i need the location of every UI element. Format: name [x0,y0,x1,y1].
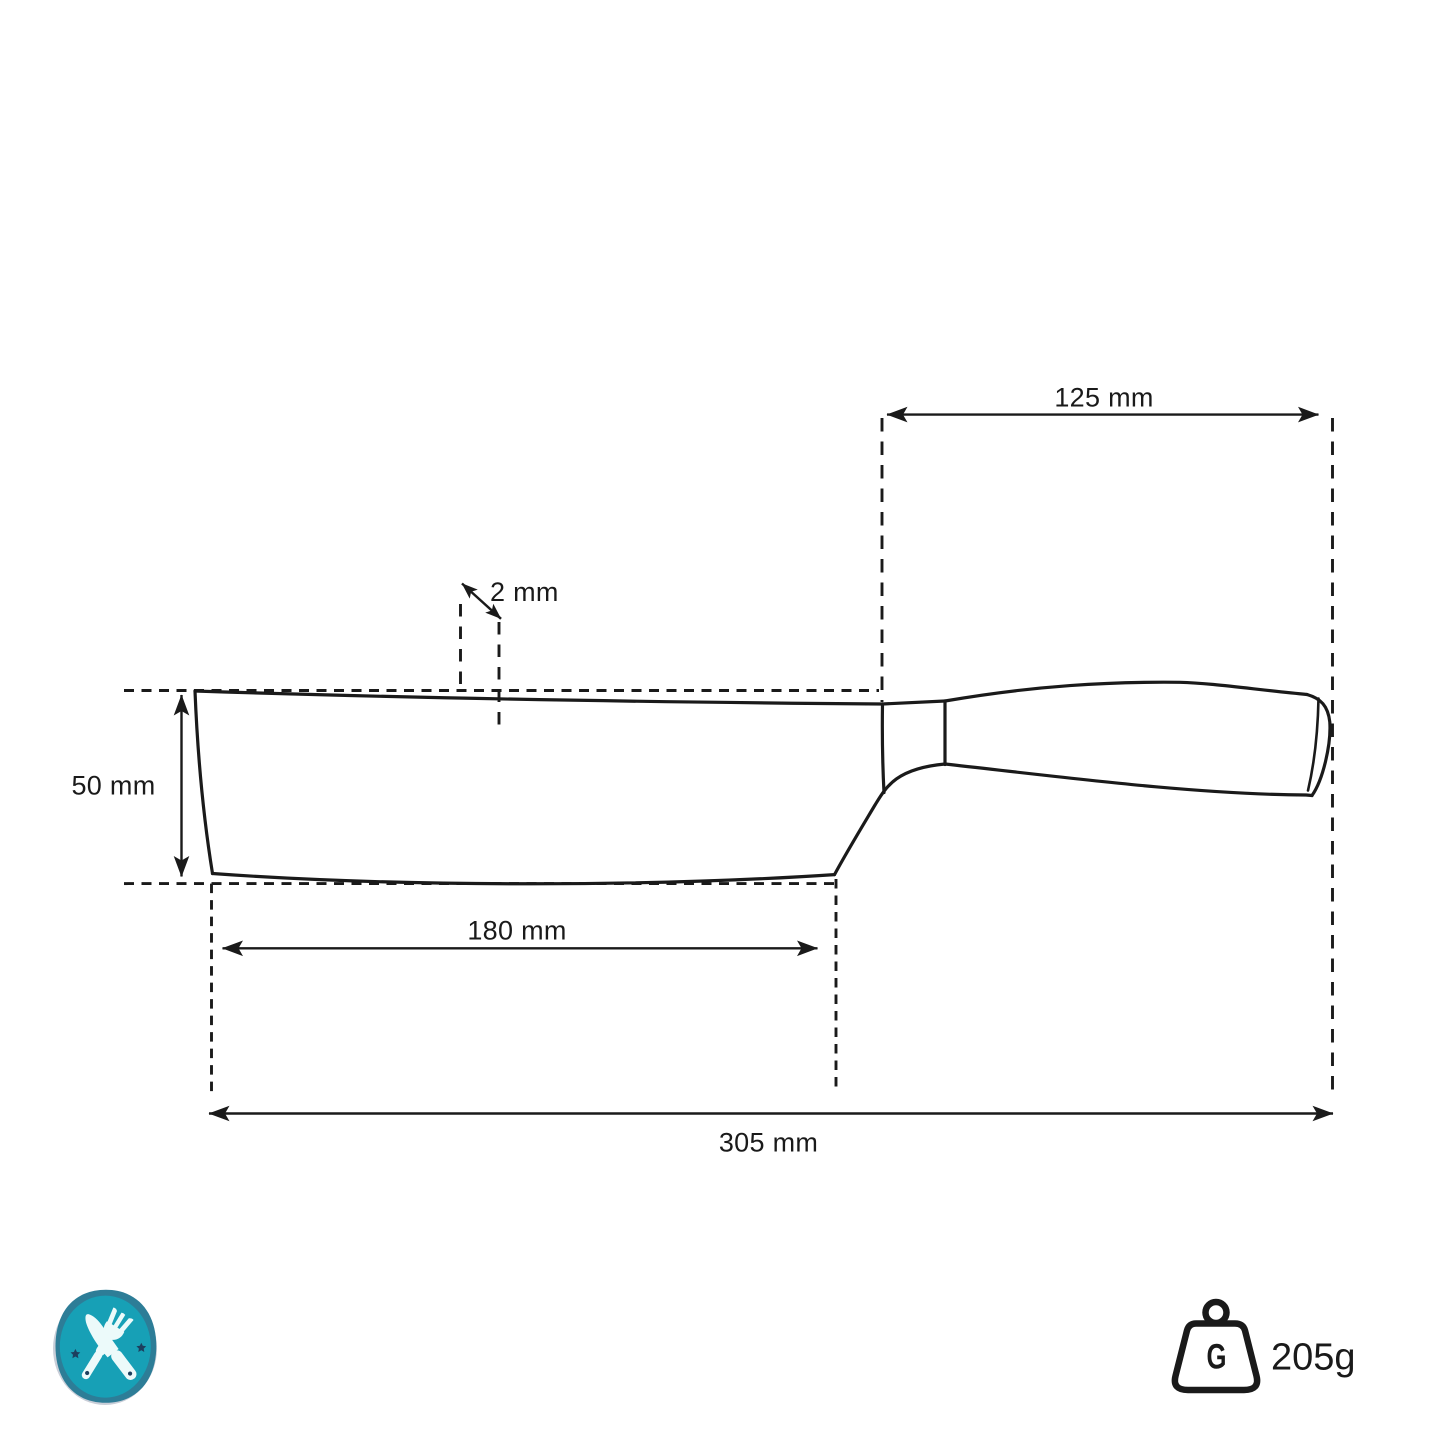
svg-text:2 mm: 2 mm [490,577,559,607]
svg-text:305 mm: 305 mm [719,1128,818,1158]
svg-text:G: G [1207,1338,1227,1377]
svg-text:205g: 205g [1271,1337,1356,1379]
svg-text:125 mm: 125 mm [1054,383,1153,413]
svg-text:180 mm: 180 mm [467,916,566,946]
svg-text:50 mm: 50 mm [71,771,155,801]
